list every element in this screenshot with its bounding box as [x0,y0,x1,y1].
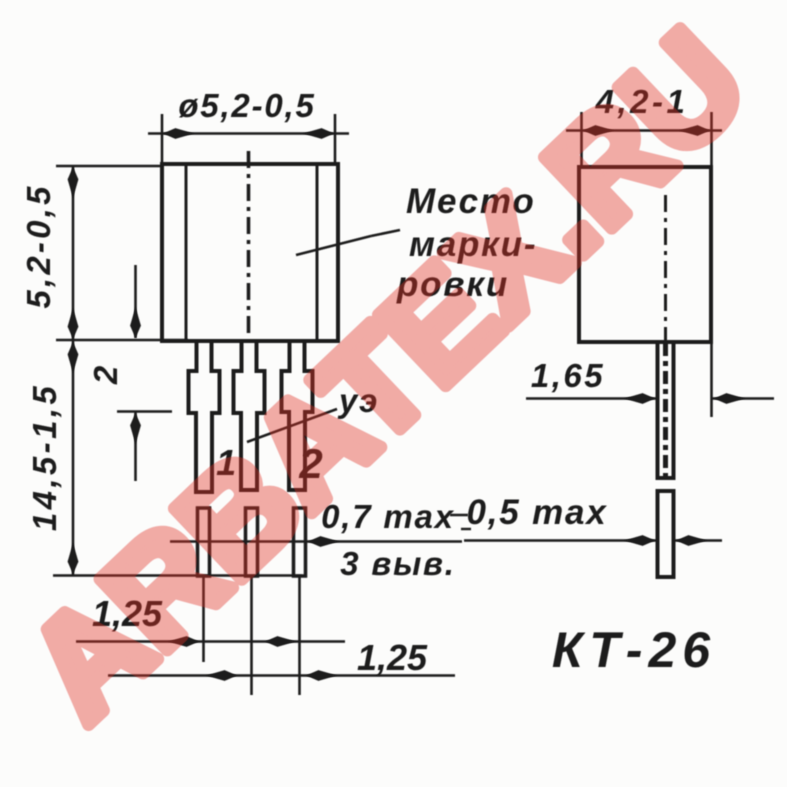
svg-text:КТ-26: КТ-26 [552,622,716,678]
svg-text:2: 2 [87,364,124,385]
svg-text:ø5,2-0,5: ø5,2-0,5 [178,87,315,124]
svg-text:0,5 max: 0,5 max [466,493,607,532]
svg-text:3 выв.: 3 выв. [340,545,456,582]
svg-text:1,25: 1,25 [357,637,428,678]
svg-text:14,5-1,5: 14,5-1,5 [26,383,63,531]
svg-text:5,2-0,5: 5,2-0,5 [20,183,57,308]
svg-text:1,65: 1,65 [531,357,605,394]
